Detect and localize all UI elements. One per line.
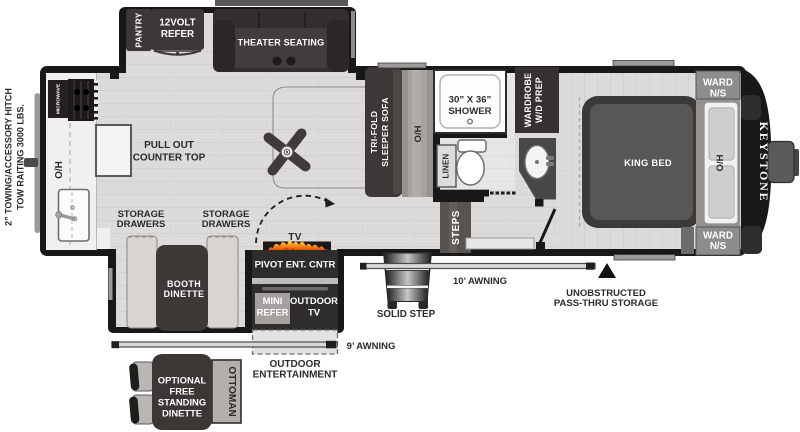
svg-text:COUNTER TOP: COUNTER TOP [133, 153, 206, 164]
svg-text:10’ AWNING: 10’ AWNING [453, 276, 507, 287]
svg-text:MINI: MINI [263, 295, 283, 306]
svg-text:WARDROBE: WARDROBE [523, 73, 533, 128]
svg-text:2” TOWING/ACCESSORY HITCH: 2” TOWING/ACCESSORY HITCH [4, 88, 14, 226]
svg-text:TOW RAITING 3000 LBS.: TOW RAITING 3000 LBS. [16, 104, 26, 210]
svg-text:DRAWERS: DRAWERS [202, 219, 251, 230]
svg-text:PIVOT ENT. CNTR: PIVOT ENT. CNTR [255, 260, 336, 271]
svg-text:9’ AWNING: 9’ AWNING [347, 341, 396, 352]
svg-text:THEATER SEATING: THEATER SEATING [238, 38, 325, 48]
svg-text:WARD: WARD [703, 78, 733, 89]
svg-text:OUTDOOR: OUTDOOR [290, 295, 338, 306]
svg-text:TV: TV [308, 307, 321, 318]
svg-text:PULL OUT: PULL OUT [144, 140, 194, 151]
svg-text:DINETTE: DINETTE [162, 408, 202, 419]
svg-text:ENTERTAINMENT: ENTERTAINMENT [253, 370, 338, 381]
svg-text:O/H: O/H [413, 125, 424, 142]
svg-text:STANDING: STANDING [158, 397, 206, 408]
svg-text:OUTDOOR: OUTDOOR [269, 359, 321, 370]
svg-text:MICROWAVE: MICROWAVE [56, 83, 62, 114]
svg-text:BOOTH: BOOTH [167, 279, 201, 289]
svg-text:DRAWERS: DRAWERS [117, 219, 166, 230]
svg-text:KING BED: KING BED [624, 158, 672, 168]
svg-text:KEYSTONE: KEYSTONE [757, 122, 771, 203]
svg-text:SHOWER: SHOWER [448, 106, 491, 117]
svg-text:N/S: N/S [710, 89, 727, 100]
svg-text:OTTOMAN: OTTOMAN [226, 366, 237, 416]
svg-text:OPTIONAL: OPTIONAL [158, 375, 207, 386]
svg-text:N/S: N/S [710, 241, 727, 252]
svg-text:PANTRY: PANTRY [135, 12, 144, 47]
svg-text:REFER: REFER [257, 307, 289, 318]
svg-text:TRI-FOLD: TRI-FOLD [369, 111, 379, 154]
svg-text:TV: TV [288, 232, 302, 243]
svg-text:O/H: O/H [715, 154, 726, 171]
svg-text:SLEEPER SOFA: SLEEPER SOFA [380, 97, 390, 167]
svg-text:STEPS: STEPS [451, 210, 462, 245]
svg-text:REFER: REFER [161, 29, 194, 40]
svg-text:WARD: WARD [703, 231, 733, 242]
svg-text:W/D PREP: W/D PREP [534, 77, 544, 123]
svg-text:SOLID STEP: SOLID STEP [377, 309, 436, 320]
svg-text:FREE: FREE [169, 386, 194, 397]
svg-text:30” X 36”: 30” X 36” [449, 95, 492, 106]
svg-text:12VOLT: 12VOLT [159, 18, 195, 29]
svg-text:LINEN: LINEN [442, 153, 451, 178]
svg-text:PASS-THRU STORAGE: PASS-THRU STORAGE [554, 298, 658, 309]
svg-text:O/H: O/H [54, 161, 65, 179]
svg-text:DINETTE: DINETTE [164, 289, 205, 299]
